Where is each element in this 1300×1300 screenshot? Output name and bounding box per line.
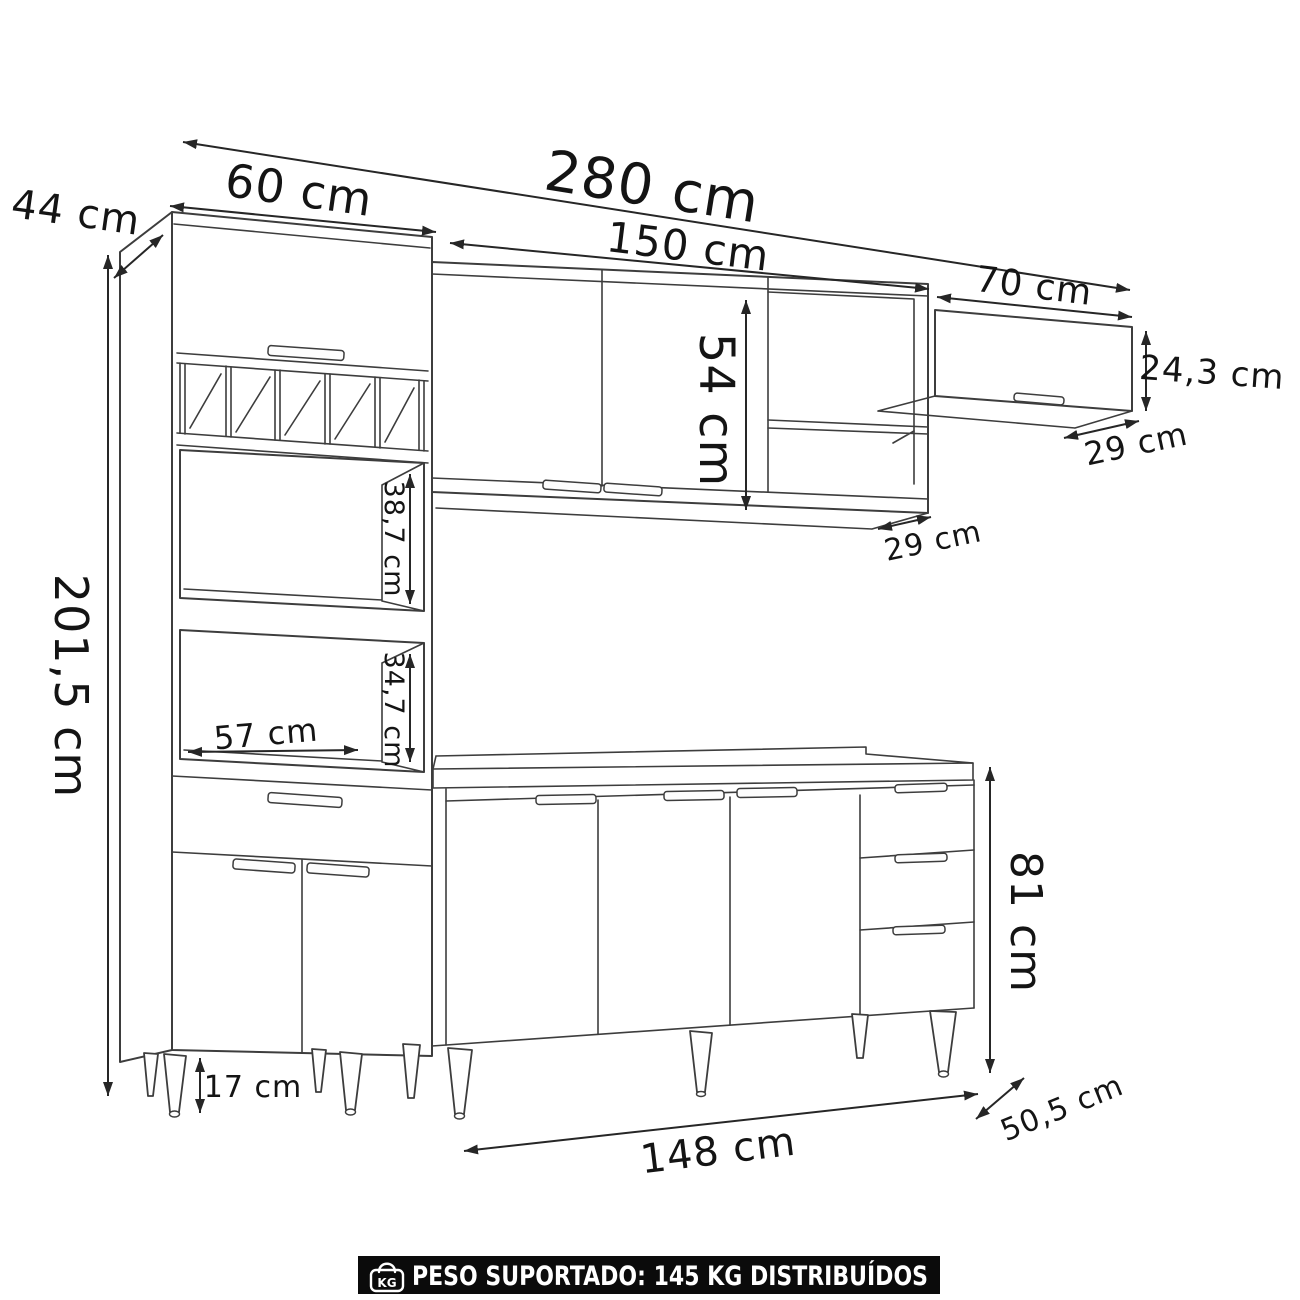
dimension-label-foot-height: 17 cm	[204, 1070, 302, 1105]
base-door1-handle	[536, 794, 596, 804]
footer-text: PESO SUPORTADO: 145 KG DISTRIBUÍDOS	[412, 1260, 928, 1292]
footer-banner: KG PESO SUPORTADO: 145 KG DISTRIBUÍDOS	[358, 1256, 940, 1294]
kitchen-dimension-diagram: 280 cm 60 cm 44 cm 150 cm 70 cm 24,3 cm …	[0, 0, 1300, 1300]
kg-weight-icon-label: KG	[377, 1276, 396, 1290]
dimension-label-wall-cabinet-inner-height: 54 cm	[688, 333, 744, 487]
base-door3-handle	[737, 787, 797, 797]
dimension-label-bottom-niche-height: 34,7 cm	[378, 652, 409, 769]
dimension-label-top-niche-height: 38,7 cm	[378, 481, 409, 598]
dimension-label-hutch-height: 201,5 cm	[44, 574, 98, 798]
drawer3-handle	[893, 925, 945, 935]
base-door2-handle	[664, 790, 724, 800]
wall-cabinet-150	[432, 262, 928, 529]
drawer2-handle	[895, 853, 947, 863]
drawer1-handle	[895, 783, 947, 793]
dimension-label-base-height: 81 cm	[1000, 851, 1051, 993]
